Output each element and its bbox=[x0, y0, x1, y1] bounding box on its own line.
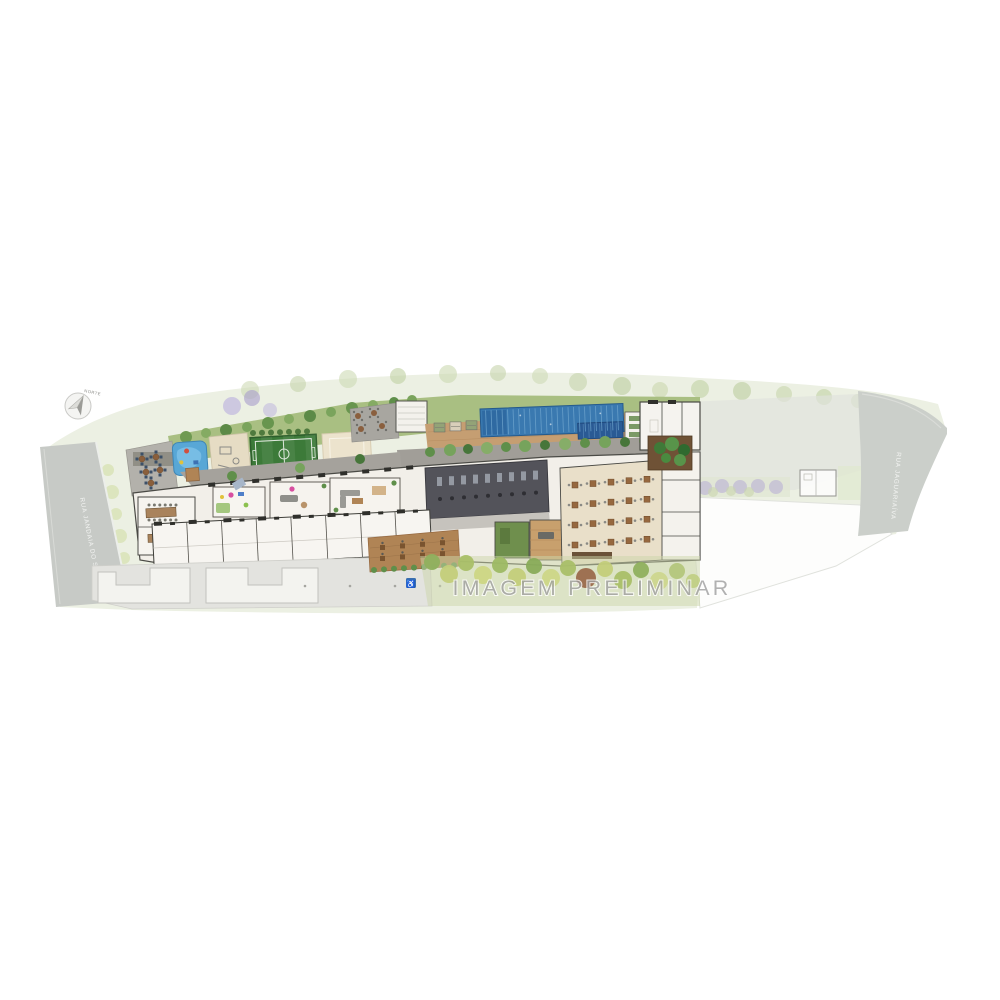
courtyard-planter bbox=[648, 436, 692, 470]
gatehouse bbox=[800, 470, 836, 496]
site-plan-page: RUA JANDAIA DO SUL RUA JAGUARIAÍVA NORTE bbox=[0, 0, 1000, 1000]
lounge-terrace bbox=[126, 441, 178, 496]
watermark-text: IMAGEM PRELIMINAR bbox=[453, 576, 732, 600]
floor-plan-svg: RUA JANDAIA DO SUL RUA JAGUARIAÍVA NORTE bbox=[0, 0, 1000, 1000]
accessibility-glyph: ♿ bbox=[406, 580, 415, 589]
lounge-room-2 bbox=[330, 478, 400, 514]
green-floor-room bbox=[495, 522, 529, 558]
compass-label: NORTE bbox=[84, 388, 102, 396]
accessibility-icon: ♿ bbox=[406, 578, 416, 589]
lounge-room-1 bbox=[270, 482, 330, 518]
gym bbox=[425, 460, 549, 519]
restaurant-cowork bbox=[560, 460, 664, 566]
compass-icon: NORTE bbox=[65, 388, 102, 419]
